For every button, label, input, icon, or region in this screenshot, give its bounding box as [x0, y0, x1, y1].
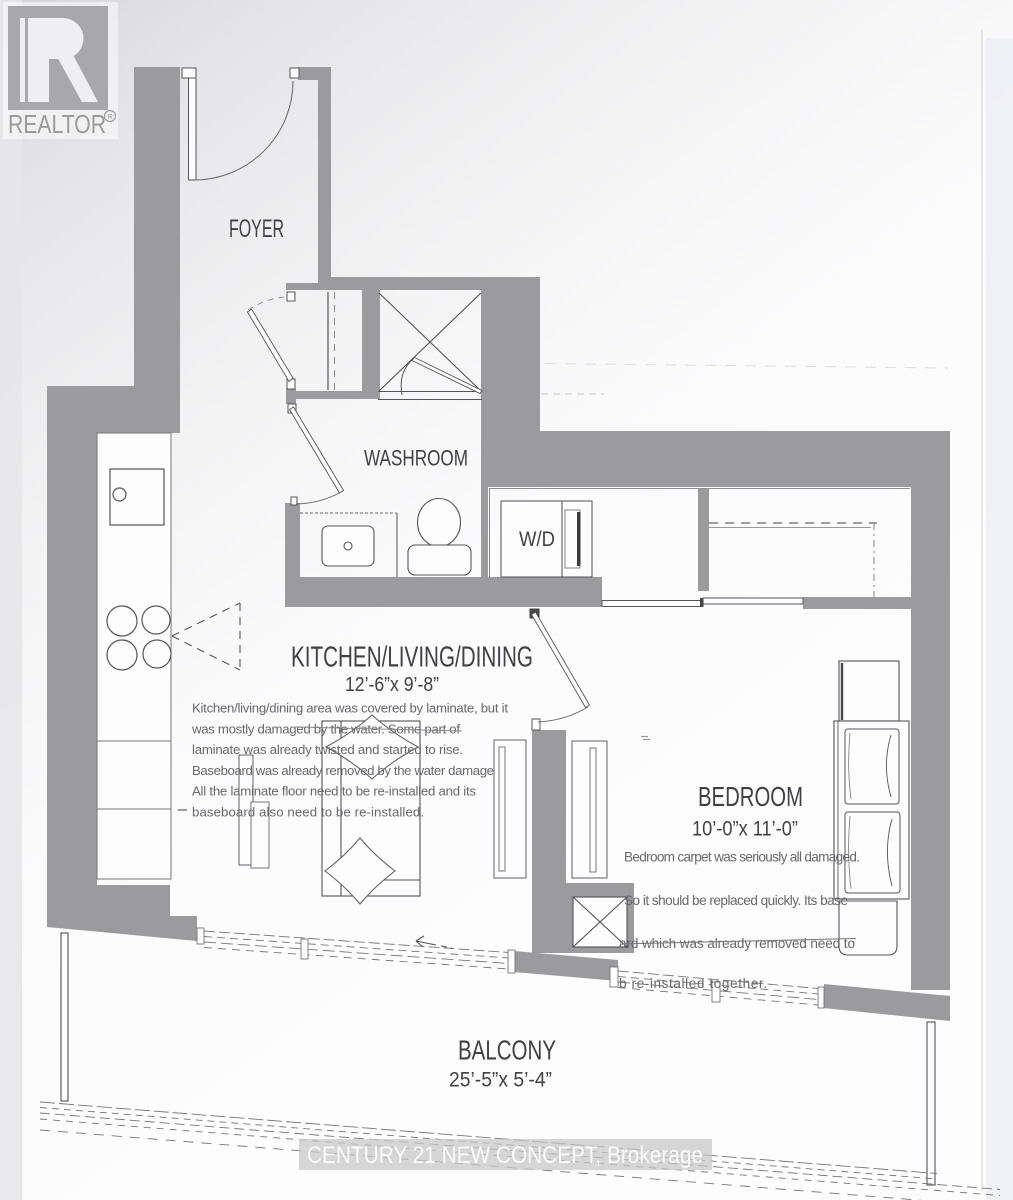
svg-text:b re-installed together.: b re-installed together.: [619, 976, 767, 991]
svg-text:Bedroom carpet was seriously a: Bedroom carpet was seriously all damaged…: [624, 850, 860, 865]
svg-text:REALTOR: REALTOR: [8, 109, 106, 139]
svg-text:12’-6”x 9’-8”: 12’-6”x 9’-8”: [345, 674, 439, 696]
svg-text:BALCONY: BALCONY: [458, 1035, 556, 1066]
svg-text:baseboard also need to be re-i: baseboard also need to be re-installed.: [192, 805, 424, 820]
svg-text:WASHROOM: WASHROOM: [364, 446, 468, 471]
svg-text:CENTURY 21 NEW CONCEPT, Broker: CENTURY 21 NEW CONCEPT, Brokerage: [307, 1142, 703, 1169]
svg-text:FOYER: FOYER: [229, 215, 284, 243]
svg-text:BEDROOM: BEDROOM: [698, 781, 803, 812]
svg-text:Baseboard was already removed: Baseboard was already removed by the wat…: [192, 763, 494, 778]
svg-text:was mostly damaged by the wate: was mostly damaged by the water. Some pa…: [191, 721, 460, 736]
svg-text:laminate was already twisted a: laminate was already twisted and started…: [192, 742, 463, 757]
svg-text:W/D: W/D: [519, 528, 555, 551]
svg-text:25’-5”x 5’-4”: 25’-5”x 5’-4”: [449, 1069, 552, 1092]
svg-text:KITCHEN/LIVING/DINING: KITCHEN/LIVING/DINING: [291, 642, 533, 674]
svg-text:So it should be replaced quick: So it should be replaced quickly. Its ba…: [624, 893, 848, 908]
svg-text:Kitchen/living/dining area was: Kitchen/living/dining area was covered b…: [192, 701, 508, 716]
svg-text:10’-0”x 11’-0”: 10’-0”x 11’-0”: [692, 818, 798, 841]
svg-text:All the laminate floor need to: All the laminate floor need to be re-ins…: [192, 784, 476, 799]
svg-text:R: R: [108, 112, 114, 121]
